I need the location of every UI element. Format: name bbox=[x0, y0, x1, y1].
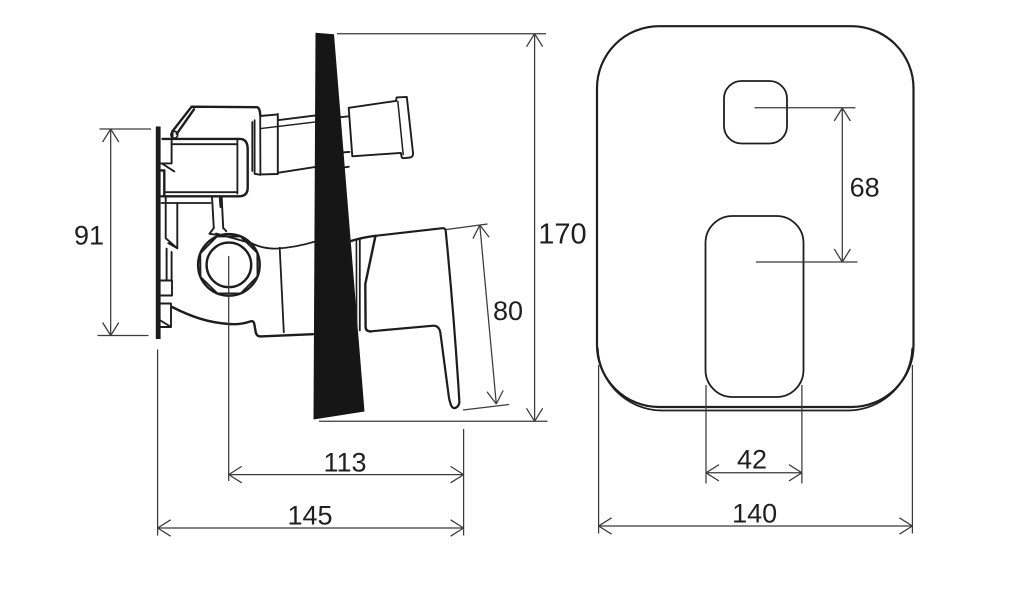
svg-text:42: 42 bbox=[737, 444, 767, 474]
svg-text:170: 170 bbox=[538, 219, 586, 251]
svg-text:140: 140 bbox=[732, 499, 777, 529]
svg-text:91: 91 bbox=[74, 221, 104, 251]
svg-text:145: 145 bbox=[287, 501, 332, 531]
svg-text:113: 113 bbox=[323, 448, 366, 478]
svg-text:68: 68 bbox=[850, 173, 880, 203]
svg-text:80: 80 bbox=[493, 296, 523, 326]
